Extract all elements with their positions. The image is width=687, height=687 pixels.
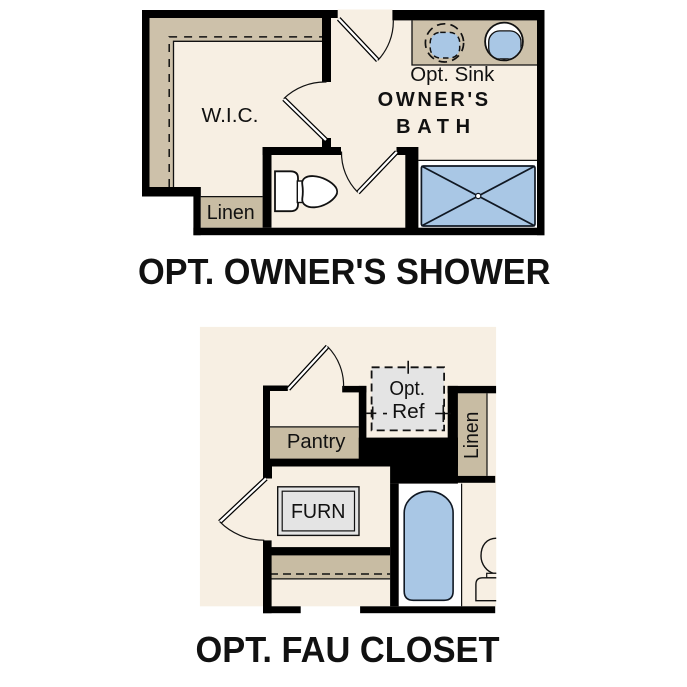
svg-text:OPT. FAU CLOSET: OPT. FAU CLOSET: [196, 629, 500, 670]
svg-text:W.I.C.: W.I.C.: [202, 105, 259, 127]
svg-text:OPT. OWNER'S SHOWER: OPT. OWNER'S SHOWER: [138, 251, 551, 292]
svg-text:Ref: Ref: [392, 401, 425, 423]
svg-text:FURN: FURN: [291, 501, 346, 523]
svg-text:Opt. Sink: Opt. Sink: [410, 63, 495, 86]
svg-text:Pantry: Pantry: [287, 431, 346, 453]
svg-text:Linen: Linen: [461, 412, 483, 459]
svg-text:Opt.: Opt.: [389, 378, 425, 400]
svg-text:Linen: Linen: [207, 202, 255, 224]
